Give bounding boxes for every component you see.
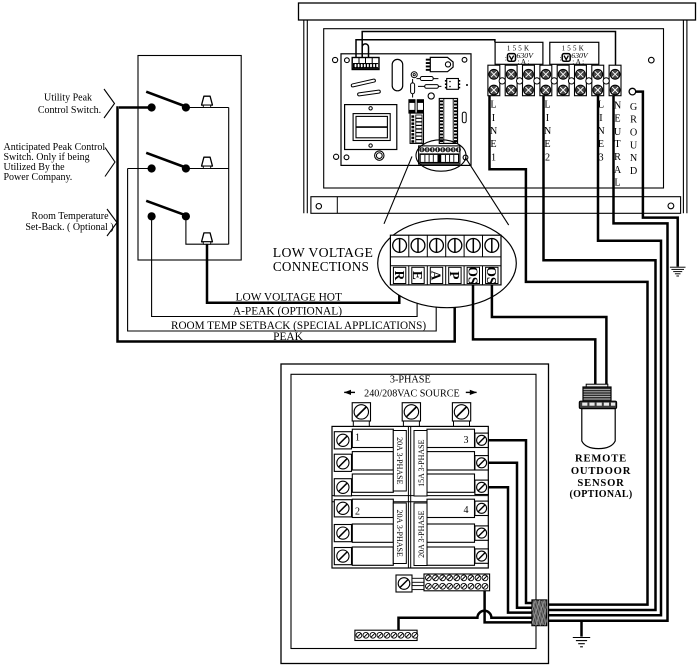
svg-text:U: U <box>614 127 622 138</box>
svg-text:OS: OS <box>484 266 499 284</box>
svg-text:E: E <box>410 271 425 280</box>
svg-text:Control Switch.: Control Switch. <box>38 105 101 116</box>
svg-text:R: R <box>614 152 621 163</box>
svg-text:I: I <box>599 113 603 124</box>
svg-text:4: 4 <box>464 505 469 516</box>
svg-text:P: P <box>447 271 462 279</box>
svg-text:3-PHASE: 3-PHASE <box>390 375 431 386</box>
svg-text:Power Company.: Power Company. <box>4 172 73 183</box>
svg-text:LOW VOLTAGE: LOW VOLTAGE <box>273 245 373 260</box>
svg-text:I: I <box>492 113 496 124</box>
svg-text:T: T <box>614 139 621 150</box>
svg-text:20A 3-PHASE: 20A 3-PHASE <box>417 510 426 557</box>
svg-text:N: N <box>490 126 498 137</box>
svg-text:1: 1 <box>491 152 496 163</box>
svg-text:L: L <box>614 178 620 189</box>
svg-text:A: A <box>429 271 444 281</box>
svg-text:E: E <box>490 139 496 150</box>
svg-text:CONNECTIONS: CONNECTIONS <box>273 259 369 274</box>
svg-text:20A 3-PHASE: 20A 3-PHASE <box>395 437 404 484</box>
svg-text:OS: OS <box>466 266 481 284</box>
svg-text:Room Temperature: Room Temperature <box>31 211 109 222</box>
svg-text:20A 3-PHASE: 20A 3-PHASE <box>395 510 404 557</box>
svg-text::: : <box>505 54 507 62</box>
svg-text:REMOTE: REMOTE <box>575 453 627 464</box>
svg-text:N: N <box>614 101 622 112</box>
svg-text:D: D <box>630 166 637 177</box>
svg-text:G: G <box>630 102 638 113</box>
svg-text:E: E <box>544 139 550 150</box>
svg-text:N: N <box>630 153 638 164</box>
svg-text::: : <box>560 54 562 62</box>
svg-text:SENSOR: SENSOR <box>577 478 624 489</box>
svg-text:L: L <box>490 100 496 111</box>
svg-text:240/208VAC SOURCE: 240/208VAC SOURCE <box>364 388 459 399</box>
svg-text:R: R <box>630 114 637 125</box>
svg-text:(OPTIONAL): (OPTIONAL) <box>570 489 633 500</box>
svg-text:PEAK: PEAK <box>273 331 304 343</box>
svg-text:R: R <box>392 271 407 281</box>
svg-text:OUTDOOR: OUTDOOR <box>571 466 631 477</box>
svg-text:A: A <box>614 165 622 176</box>
svg-text:N: N <box>544 126 552 137</box>
svg-text:15A 3-PHASE: 15A 3-PHASE <box>417 439 426 486</box>
svg-text:I: I <box>546 113 550 124</box>
svg-text:Set-Back. ( Optional ): Set-Back. ( Optional ) <box>25 222 113 233</box>
svg-text:Utility Peak: Utility Peak <box>44 93 92 104</box>
svg-text:2: 2 <box>545 152 550 163</box>
svg-text:O: O <box>630 128 637 139</box>
svg-text:LOW VOLTAGE HOT: LOW VOLTAGE HOT <box>236 292 342 304</box>
svg-text:E: E <box>614 114 620 125</box>
svg-text:2: 2 <box>355 506 360 517</box>
svg-text:L: L <box>544 100 550 111</box>
svg-text:U: U <box>630 141 638 152</box>
svg-text:1: 1 <box>355 433 360 444</box>
svg-text:3: 3 <box>464 435 469 446</box>
svg-text:A-PEAK (OPTIONAL): A-PEAK (OPTIONAL) <box>233 305 342 317</box>
